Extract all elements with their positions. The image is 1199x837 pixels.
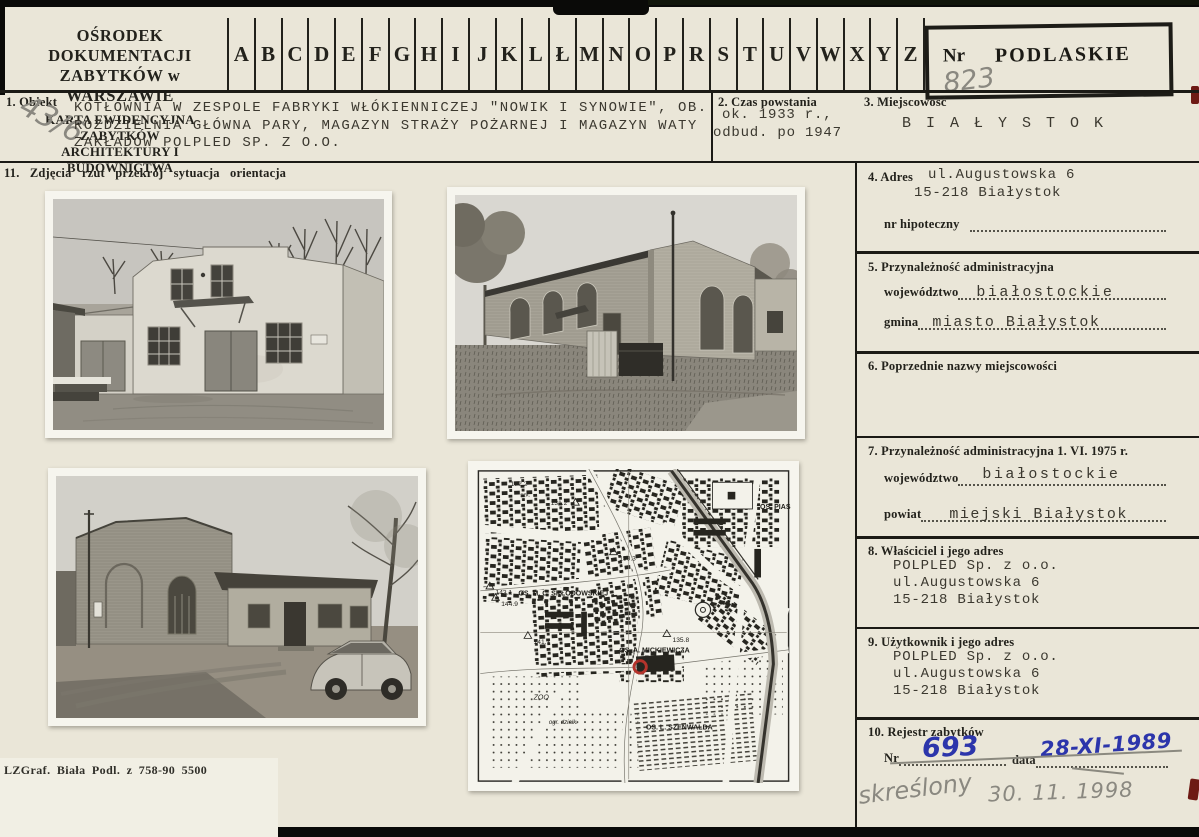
voivodeship-1975-row: województwo białostockie [884, 470, 1166, 486]
commune-row: gmina miasto Białystok [884, 314, 1166, 330]
map-district-label: OS. M. C. SKŁODOWSKIEJ [518, 591, 608, 598]
alphabet-letter: K [497, 18, 524, 90]
alphabet-letter: B [256, 18, 283, 90]
alphabet-letter: G [390, 18, 417, 90]
mortgage-number-row: nr hipoteczny [884, 216, 1166, 232]
alphabet-letter: Ł [550, 18, 577, 90]
alphabet-strip: A B C D E F G H I J K L Ł M N O P R S T … [227, 18, 925, 90]
scanned-card: OŚRODEK DOKUMENTACJI ZABYTKÓW w WARSZAWI… [0, 0, 1199, 837]
alphabet-letter: Z [898, 18, 925, 90]
photo-gable-annex [48, 468, 426, 726]
user-line3: 15-218 Białystok [893, 683, 1059, 700]
alphabet-letter: U [764, 18, 791, 90]
photo-side-view [447, 187, 805, 439]
photo-side-view-image [455, 195, 797, 431]
town-value: B I A Ł Y S T O K [902, 115, 1106, 132]
map-elevation-label: 131.2 [551, 500, 568, 507]
region-stamp: PODLASKIE [995, 43, 1131, 68]
county-label: powiat [884, 507, 921, 522]
photo-front-elevation-image [53, 199, 384, 430]
alphabet-letter: T [738, 18, 765, 90]
construction-date-line1: ok. 1933 r., [722, 107, 832, 123]
voivodeship-line: białostockie [958, 284, 1166, 300]
map-district-label: OS. A. MICKIEWICZA [619, 648, 689, 655]
alphabet-letter: E [336, 18, 363, 90]
county-value: miejski Białystok [949, 506, 1128, 523]
map-elevation-label: 135.8 [673, 637, 690, 644]
photo-gable-annex-image [56, 476, 418, 718]
map-district-label: OS. PIAS [760, 504, 791, 511]
map-zoo-label: ZOO [533, 694, 550, 701]
site-map-image: 132.2 szk. 131.2 130.3 143.1 144.9 141.7… [476, 469, 791, 783]
map-gardens-label: ogr. działk. [549, 719, 578, 726]
construction-date-line2: odbud. po 1947 [713, 125, 842, 141]
alphabet-letter: L [523, 18, 550, 90]
voivodeship-1975-value: białostockie [982, 466, 1120, 483]
section5-label: 5. Przynależność administracyjna [868, 260, 1054, 275]
section4-label: 4. Adres [868, 170, 913, 185]
divider [857, 627, 1199, 629]
section11-label: 11. Zdjęcia rzut przekrój sytuacja orien… [4, 166, 286, 181]
voivodeship-value: białostockie [976, 284, 1114, 301]
address-line1: ul.Augustowska 6 [928, 167, 1075, 183]
alphabet-letter: J [470, 18, 497, 90]
map-elevation-label: 144.9 [501, 601, 518, 608]
divider [857, 251, 1199, 254]
divider [855, 161, 857, 827]
user-address: POLPLED Sp. z o.o. ul.Augustowska 6 15-2… [893, 649, 1059, 700]
county-row: powiat miejski Białystok [884, 506, 1166, 522]
register-removed-date: 30. 11. 1998 [988, 777, 1134, 806]
section9-label: 9. Użytkownik i jego adres [868, 635, 1014, 650]
section3-label: 3. Miejscowość [864, 95, 947, 110]
alphabet-letter: S [711, 18, 738, 90]
print-code: LZGraf. Biała Podl. z 758-90 5500 [4, 763, 207, 778]
alphabet-letter: V [791, 18, 818, 90]
divider [0, 90, 1199, 93]
map-elevation-label: 141.7 [534, 639, 551, 646]
alphabet-letter: D [309, 18, 336, 90]
address-line2: 15-218 Białystok [914, 185, 1061, 201]
section7-label: 7. Przynależność administracyjna 1. VI. … [868, 444, 1128, 459]
divider [857, 717, 1199, 720]
commune-label: gmina [884, 315, 918, 330]
divider [857, 536, 1199, 539]
voivodeship-row: województwo białostockie [884, 284, 1166, 300]
alphabet-letter: P [657, 18, 684, 90]
owner-line1: POLPLED Sp. z o.o. [893, 558, 1059, 575]
voivodeship-1975-label: województwo [884, 471, 958, 486]
alphabet-letter: A [229, 18, 256, 90]
owner-line2: ul.Augustowska 6 [893, 575, 1059, 592]
map-elevation-label: 130.3 [619, 555, 636, 562]
alphabet-letter: O [630, 18, 657, 90]
scan-edge-top-right [648, 0, 1199, 5]
divider [0, 161, 1199, 163]
map-elevation-label: 143.1 [496, 590, 513, 597]
object-name-line1: KOTŁOWNIA W ZESPOLE FABRYKI WŁÓKIENNICZE… [74, 100, 708, 118]
owner-line3: 15-218 Białystok [893, 592, 1059, 609]
divider [857, 351, 1199, 354]
user-line1: POLPLED Sp. z o.o. [893, 649, 1059, 666]
nr-label: Nr [943, 45, 965, 67]
user-line2: ul.Augustowska 6 [893, 666, 1059, 683]
alphabet-letter: W [818, 18, 845, 90]
map-elevation-label: 132.2 [511, 481, 528, 488]
photo-front-elevation [45, 191, 392, 438]
object-name: KOTŁOWNIA W ZESPOLE FABRYKI WŁÓKIENNICZE… [74, 100, 708, 153]
alphabet-letter: R [684, 18, 711, 90]
registry-number-box: Nr PODLASKIE 823 [924, 22, 1173, 99]
divider [857, 436, 1199, 438]
county-line: miejski Białystok [921, 506, 1166, 522]
alphabet-letter: Y [871, 18, 898, 90]
alphabet-letter: I [443, 18, 470, 90]
voivodeship-1975-line: białostockie [958, 470, 1166, 486]
section6-label: 6. Poprzednie nazwy miejscowości [868, 359, 1057, 374]
scan-red-mark-bottom [1188, 778, 1199, 800]
scan-edge-bottom [278, 827, 1199, 837]
owner-address: POLPLED Sp. z o.o. ul.Augustowska 6 15-2… [893, 558, 1059, 609]
alphabet-letter: H [416, 18, 443, 90]
scan-edge-left [0, 7, 5, 95]
object-name-line2: ROZDZIELNIA GŁÓWNA PARY, MAGAZYN STRAŻY … [74, 118, 708, 136]
alphabet-letter: C [283, 18, 310, 90]
mortgage-number-line [970, 216, 1166, 232]
mortgage-number-label: nr hipoteczny [884, 217, 960, 232]
site-map: 132.2 szk. 131.2 130.3 143.1 144.9 141.7… [468, 461, 799, 791]
alphabet-letter: X [845, 18, 872, 90]
scan-blot-top [553, 0, 649, 15]
voivodeship-label: województwo [884, 285, 958, 300]
commune-line: miasto Białystok [918, 314, 1166, 330]
object-name-line3: ZAKŁADÓW POLPLED SP. Z O.O. [74, 135, 708, 153]
nr-value-handwritten: 823 [942, 62, 997, 99]
commune-value: miasto Białystok [932, 314, 1100, 331]
map-district-label: OS. L. SZENWALDA [646, 725, 713, 732]
alphabet-letter: N [604, 18, 631, 90]
scan-red-mark-top [1191, 86, 1199, 104]
alphabet-letter: M [577, 18, 604, 90]
map-school-label: szk. [520, 493, 530, 499]
org-name-line1: OŚRODEK DOKUMENTACJI [14, 26, 226, 66]
section8-label: 8. Właściciel i jego adres [868, 544, 1004, 559]
alphabet-letter: F [363, 18, 390, 90]
